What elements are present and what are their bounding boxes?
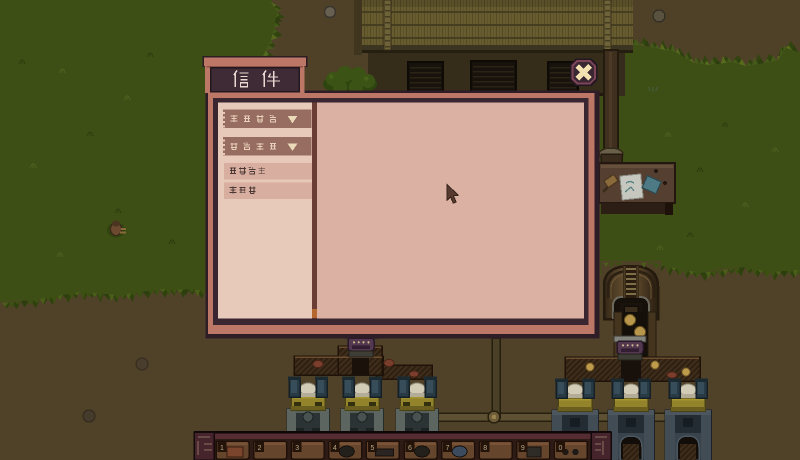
- svg-text:7: 7: [446, 445, 450, 452]
- svg-text:9: 9: [521, 445, 525, 452]
- svg-text:2: 2: [258, 445, 262, 452]
- svg-text:4: 4: [333, 445, 337, 452]
- svg-text:5: 5: [370, 445, 374, 452]
- svg-text:1: 1: [220, 445, 224, 452]
- svg-text:3: 3: [295, 445, 299, 452]
- svg-text:6: 6: [408, 445, 412, 452]
- svg-text:0: 0: [558, 445, 562, 452]
- svg-text:8: 8: [483, 445, 487, 452]
